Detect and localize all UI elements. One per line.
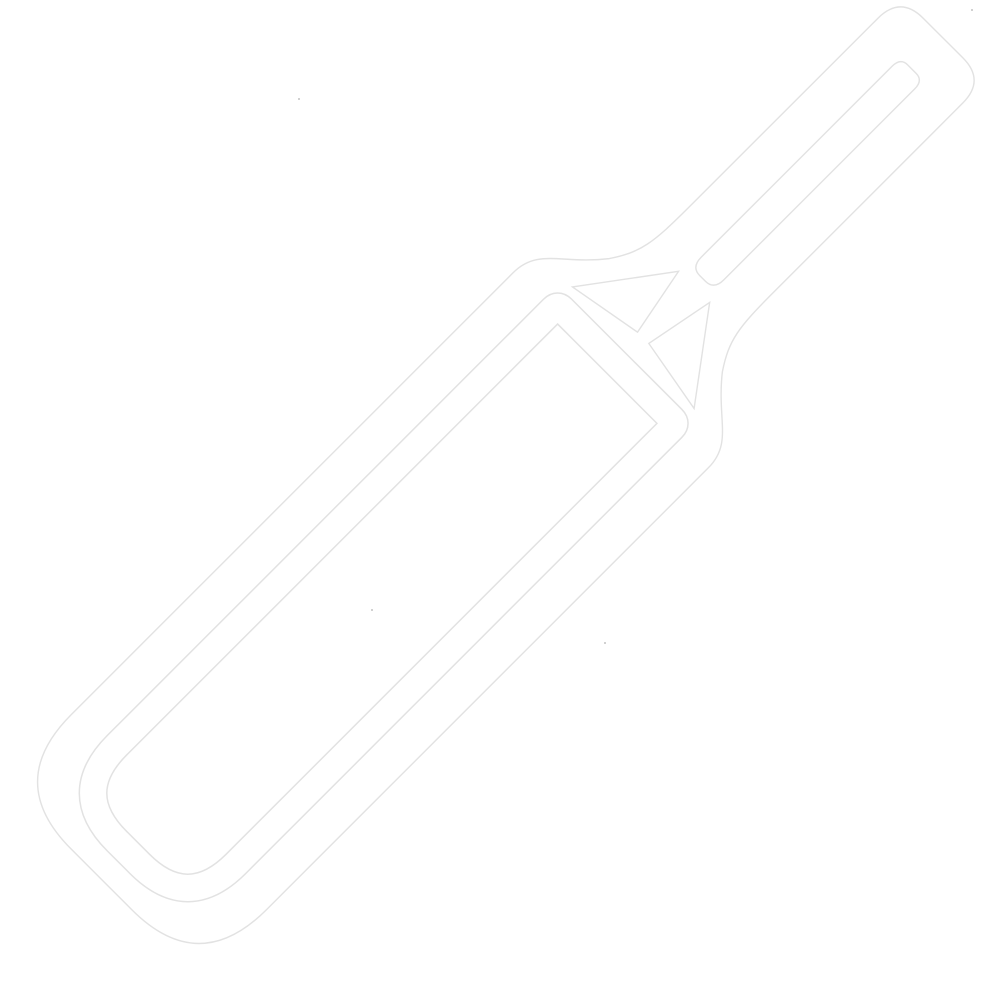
bat-outline (4, 0, 1008, 977)
noise-speck (971, 9, 973, 11)
noise-speck (371, 609, 373, 611)
cricket-bat-icon (0, 0, 1008, 987)
cricket-bat-group (4, 0, 1008, 977)
image-canvas (0, 0, 1008, 987)
noise-speck (298, 98, 300, 100)
noise-speck (604, 642, 606, 644)
